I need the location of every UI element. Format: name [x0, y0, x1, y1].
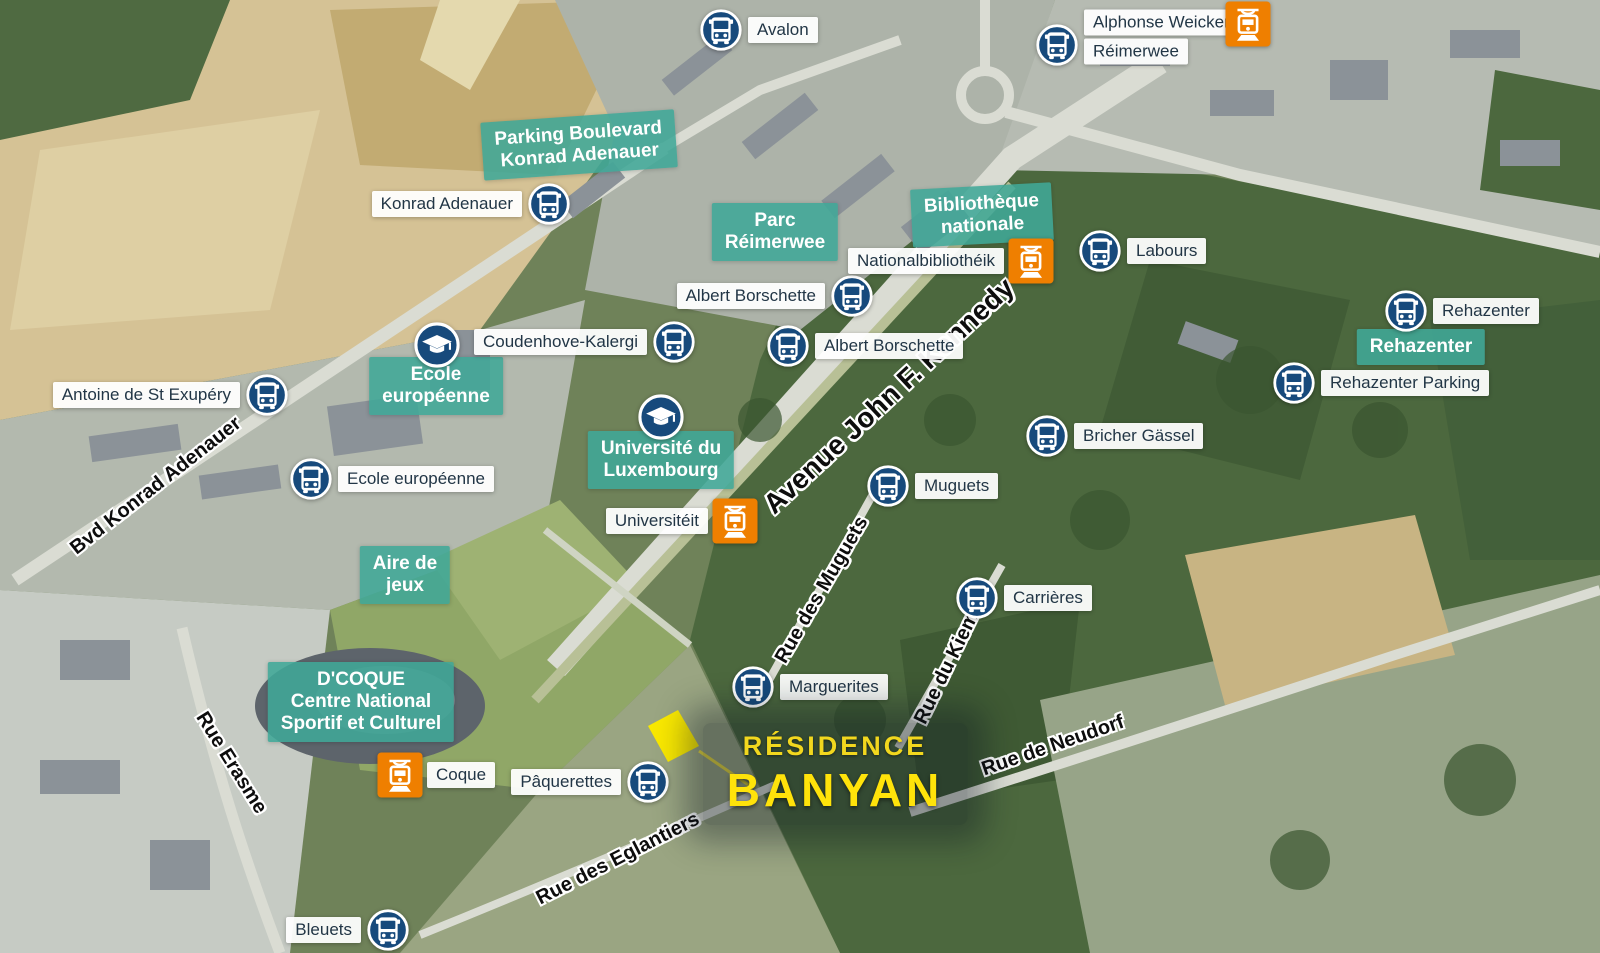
stop-label: Réimerwee — [1084, 39, 1188, 65]
bus-icon — [767, 325, 809, 367]
stop-label: Alphonse Weicker — [1084, 10, 1239, 36]
graduation-cap-icon — [414, 322, 460, 368]
stop-label: Bleuets — [286, 917, 361, 943]
stop-label: Avalon — [748, 17, 818, 43]
stop-label: Ecole européenne — [338, 466, 494, 492]
tram-icon — [1225, 1, 1271, 47]
residence-line2: BANYAN — [727, 763, 944, 817]
stop-label: Antoine de St Exupéry — [53, 382, 240, 408]
stop-label: Bricher Gässel — [1074, 423, 1203, 449]
stop-label: Albert Borschette — [677, 283, 825, 309]
tram-icon — [1008, 238, 1054, 284]
residence-banyan-label: RÉSIDENCE BANYAN — [703, 723, 968, 825]
bus-icon — [1079, 230, 1121, 272]
stop-label: Labours — [1127, 238, 1206, 264]
stop-label: Coudenhove-Kalergi — [474, 329, 647, 355]
stop-label: Rehazenter — [1433, 298, 1539, 324]
graduation-cap-icon — [638, 394, 684, 440]
bus-icon — [367, 909, 409, 951]
stop-label: Marguerites — [780, 674, 888, 700]
map-canvas: Avenue John F. KennedyBvd Konrad Adenaue… — [0, 0, 1600, 953]
stop-label: Muguets — [915, 473, 998, 499]
stop-label: Universitéit — [606, 508, 708, 534]
stop-label: Nationalbibliothéik — [848, 248, 1004, 274]
bus-icon — [956, 577, 998, 619]
bus-icon — [700, 9, 742, 51]
bus-icon — [831, 275, 873, 317]
stop-label: Pâquerettes — [511, 769, 621, 795]
bus-icon — [246, 374, 288, 416]
stop-label: Konrad Adenauer — [372, 191, 522, 217]
bus-icon — [1385, 290, 1427, 332]
bus-icon — [732, 666, 774, 708]
bus-icon — [528, 183, 570, 225]
stop-label: Rehazenter Parking — [1321, 370, 1489, 396]
bus-icon — [1273, 362, 1315, 404]
stop-label: Coque — [427, 762, 495, 788]
tram-icon — [377, 752, 423, 798]
residence-line1: RÉSIDENCE — [727, 731, 944, 762]
bus-icon — [1026, 415, 1068, 457]
bus-icon — [653, 321, 695, 363]
bus-icon — [290, 458, 332, 500]
bus-icon — [867, 465, 909, 507]
stop-label: Carrières — [1004, 585, 1092, 611]
tram-icon — [712, 498, 758, 544]
stop-label: Albert Borschette — [815, 333, 963, 359]
bus-icon — [1036, 24, 1078, 66]
bus-icon — [627, 761, 669, 803]
